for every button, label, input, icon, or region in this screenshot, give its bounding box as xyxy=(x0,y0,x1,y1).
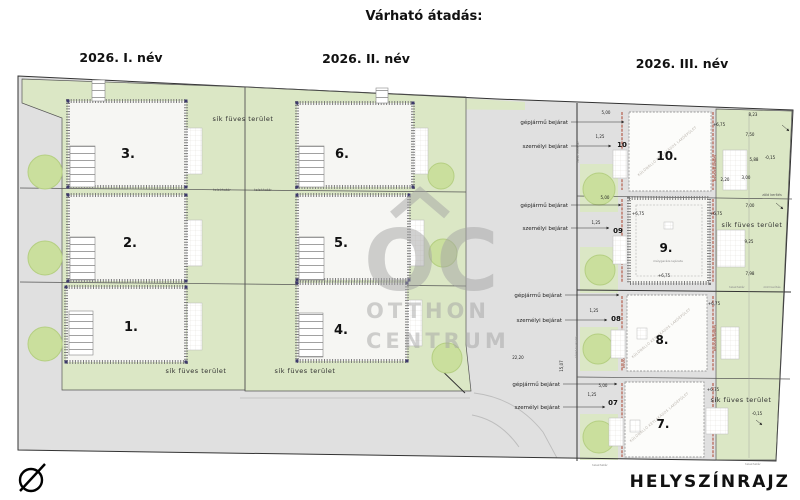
plot-mark: 09 xyxy=(613,227,623,235)
plot-buildings-left: 3. 2. 1. xyxy=(65,80,203,364)
dim-label: 7,00 xyxy=(746,203,755,208)
entrance-label: személyi bejárat xyxy=(517,317,563,324)
dim-label: 7,50 xyxy=(746,132,755,137)
plot-number: 9. xyxy=(660,241,673,255)
plot-number: 7. xyxy=(657,417,670,431)
elevation-label: +6,75 xyxy=(658,273,671,278)
grass-label: sík füves terület xyxy=(275,367,336,375)
boundary-label: telekhatár xyxy=(592,463,608,467)
entrance-label: személyi bejárat xyxy=(515,404,561,411)
entrance-label: gépjármű bejárat xyxy=(512,381,560,388)
tree-icon xyxy=(428,163,454,189)
elevation-label: +6,75 xyxy=(707,387,720,392)
boundary-label: telekhatár xyxy=(213,188,231,192)
dim-label: 7,98 xyxy=(746,271,755,276)
dim-label: 8,23 xyxy=(749,112,758,117)
dim-label: 5,00 xyxy=(599,383,608,388)
site-plan-page: tervezett kerítés tervezett kerítés terv… xyxy=(0,0,800,500)
dim-label: -0,15 xyxy=(765,155,776,160)
north-arrow-icon xyxy=(20,464,45,491)
entrance-label: személyi bejárat xyxy=(523,143,569,150)
plot-7-building: KÜLÖNÁLLÓ KÉTLAKÁSOS LAKÓÉPÜLET 7. xyxy=(625,382,704,457)
watermark-line1: OTTHON xyxy=(366,299,490,323)
entrance-label: gépjármű bejárat xyxy=(520,202,568,209)
entrance-label: személyi bejárat xyxy=(523,225,569,232)
tree-icon xyxy=(583,334,613,364)
dim-label: 22,20 xyxy=(512,355,524,360)
plot-number: 6. xyxy=(335,147,349,162)
entrance-label: gépjármű bejárat xyxy=(520,119,568,126)
tree-icon xyxy=(583,173,615,205)
column-heading-q3: 2026. III. név xyxy=(636,56,728,71)
site-plan-drawing: tervezett kerítés tervezett kerítés terv… xyxy=(0,0,800,500)
dim-label: 9,25 xyxy=(745,239,754,244)
plot-mark: 08 xyxy=(611,315,621,323)
dim-label: 1,25 xyxy=(592,220,601,225)
dim-label: 1,25 xyxy=(588,392,597,397)
tree-icon xyxy=(585,255,615,285)
dim-label: 1,25 xyxy=(590,308,599,313)
elevation-label: +6,75 xyxy=(713,122,726,127)
plot-number: 4. xyxy=(334,323,348,338)
dim-label: 3,00 xyxy=(742,175,751,180)
plot-8-building: KÜLÖNÁLLÓ KÉTLAKÁSOS LAKÓÉPÜLET 8. xyxy=(627,295,707,371)
red-line-label: tervezett kerítés xyxy=(713,155,717,182)
column-heading-q2: 2026. II. név xyxy=(322,51,410,66)
plot-mark: 10 xyxy=(617,141,627,149)
grass-label: sík füves terület xyxy=(722,221,783,229)
plan-type-title: HELYSZÍNRAJZ xyxy=(630,470,790,492)
entrance-label: gépjármű bejárat xyxy=(514,292,562,299)
grass-label: sík füves terület xyxy=(213,115,274,123)
watermark-line2: CENTRUM xyxy=(366,329,510,353)
page-title: Várható átadás: xyxy=(365,9,482,24)
elevation-label: +6,75 xyxy=(710,211,723,216)
plot-number: 2. xyxy=(123,236,137,251)
plot-number: 8. xyxy=(656,333,669,347)
elevation-label: +6,75 xyxy=(708,301,721,306)
tree-icon xyxy=(28,327,62,361)
dim-label: 5,00 xyxy=(601,195,610,200)
tree-icon xyxy=(28,241,62,275)
dim-label: 1,25 xyxy=(596,134,605,139)
dim-label: 2,20 xyxy=(721,177,730,182)
grass-label: sík füves terület xyxy=(166,367,227,375)
red-line-label: tervezett kerítés xyxy=(713,325,717,352)
plot-2-building: 2. xyxy=(67,194,203,283)
watermark: OC OTTHON CENTRUM xyxy=(364,192,510,353)
watermark-initials: OC xyxy=(364,212,499,311)
grass-label: sík füves terület xyxy=(711,396,772,404)
paving-label: térkő burkolat xyxy=(574,336,578,358)
elevation-label: +6,75 xyxy=(632,211,645,216)
boundary-label: telekhatár xyxy=(745,462,761,466)
dim-label: 5,88 xyxy=(750,157,759,162)
boundary-label: telekhatár xyxy=(729,285,745,289)
dim-label: 5,00 xyxy=(602,110,611,115)
plot-number: 3. xyxy=(121,147,135,162)
plot-mark: 07 xyxy=(608,399,618,407)
plot-number: 1. xyxy=(124,320,138,335)
paving-label: térkő burkolat xyxy=(576,141,580,163)
dim-label: 15,07 xyxy=(559,360,564,372)
green-fence-label: zöld kerítés xyxy=(762,193,782,197)
garage-label: mélygarázs lejárata xyxy=(653,259,683,263)
green-fence-label: zöld kerítés xyxy=(763,285,781,289)
plot-number: 10. xyxy=(656,149,677,163)
plot-1-building: 1. xyxy=(65,286,203,364)
plot-10-building: KÜLÖNÁLLÓ KÉTLAKÁSOS LAKÓÉPÜLET 10. xyxy=(629,112,711,191)
plot-6-building: 6. xyxy=(296,88,429,189)
tree-icon xyxy=(28,155,62,189)
plot-number: 5. xyxy=(334,236,348,251)
dim-label: -0,15 xyxy=(752,411,763,416)
column-heading-q1: 2026. I. név xyxy=(79,50,162,65)
boundary-label: telekhatár xyxy=(254,188,272,192)
